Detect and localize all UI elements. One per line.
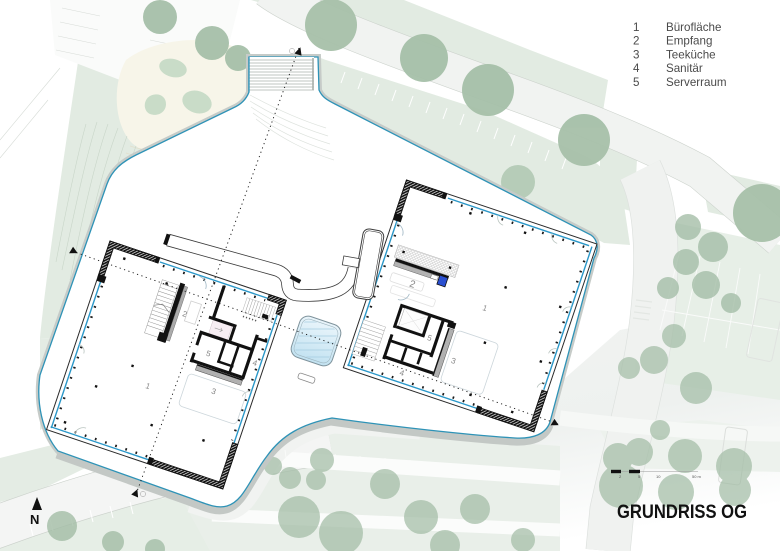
svg-text:50 m: 50 m	[692, 474, 702, 479]
svg-text:10: 10	[656, 474, 661, 479]
svg-text:Teeküche: Teeküche	[666, 48, 716, 61]
svg-text:5: 5	[633, 76, 639, 89]
svg-text:3: 3	[633, 48, 639, 61]
svg-text:GRUNDRISS OG: GRUNDRISS OG	[617, 501, 747, 523]
svg-text:Serverraum: Serverraum	[666, 76, 727, 89]
svg-text:Bürofläche: Bürofläche	[666, 21, 721, 34]
svg-text:N: N	[30, 512, 39, 527]
svg-text:1: 1	[633, 21, 639, 34]
svg-text:4: 4	[633, 62, 640, 75]
svg-text:Sanitär: Sanitär	[666, 62, 703, 75]
svg-text:Empfang: Empfang	[666, 35, 712, 48]
svg-text:2: 2	[633, 35, 639, 48]
